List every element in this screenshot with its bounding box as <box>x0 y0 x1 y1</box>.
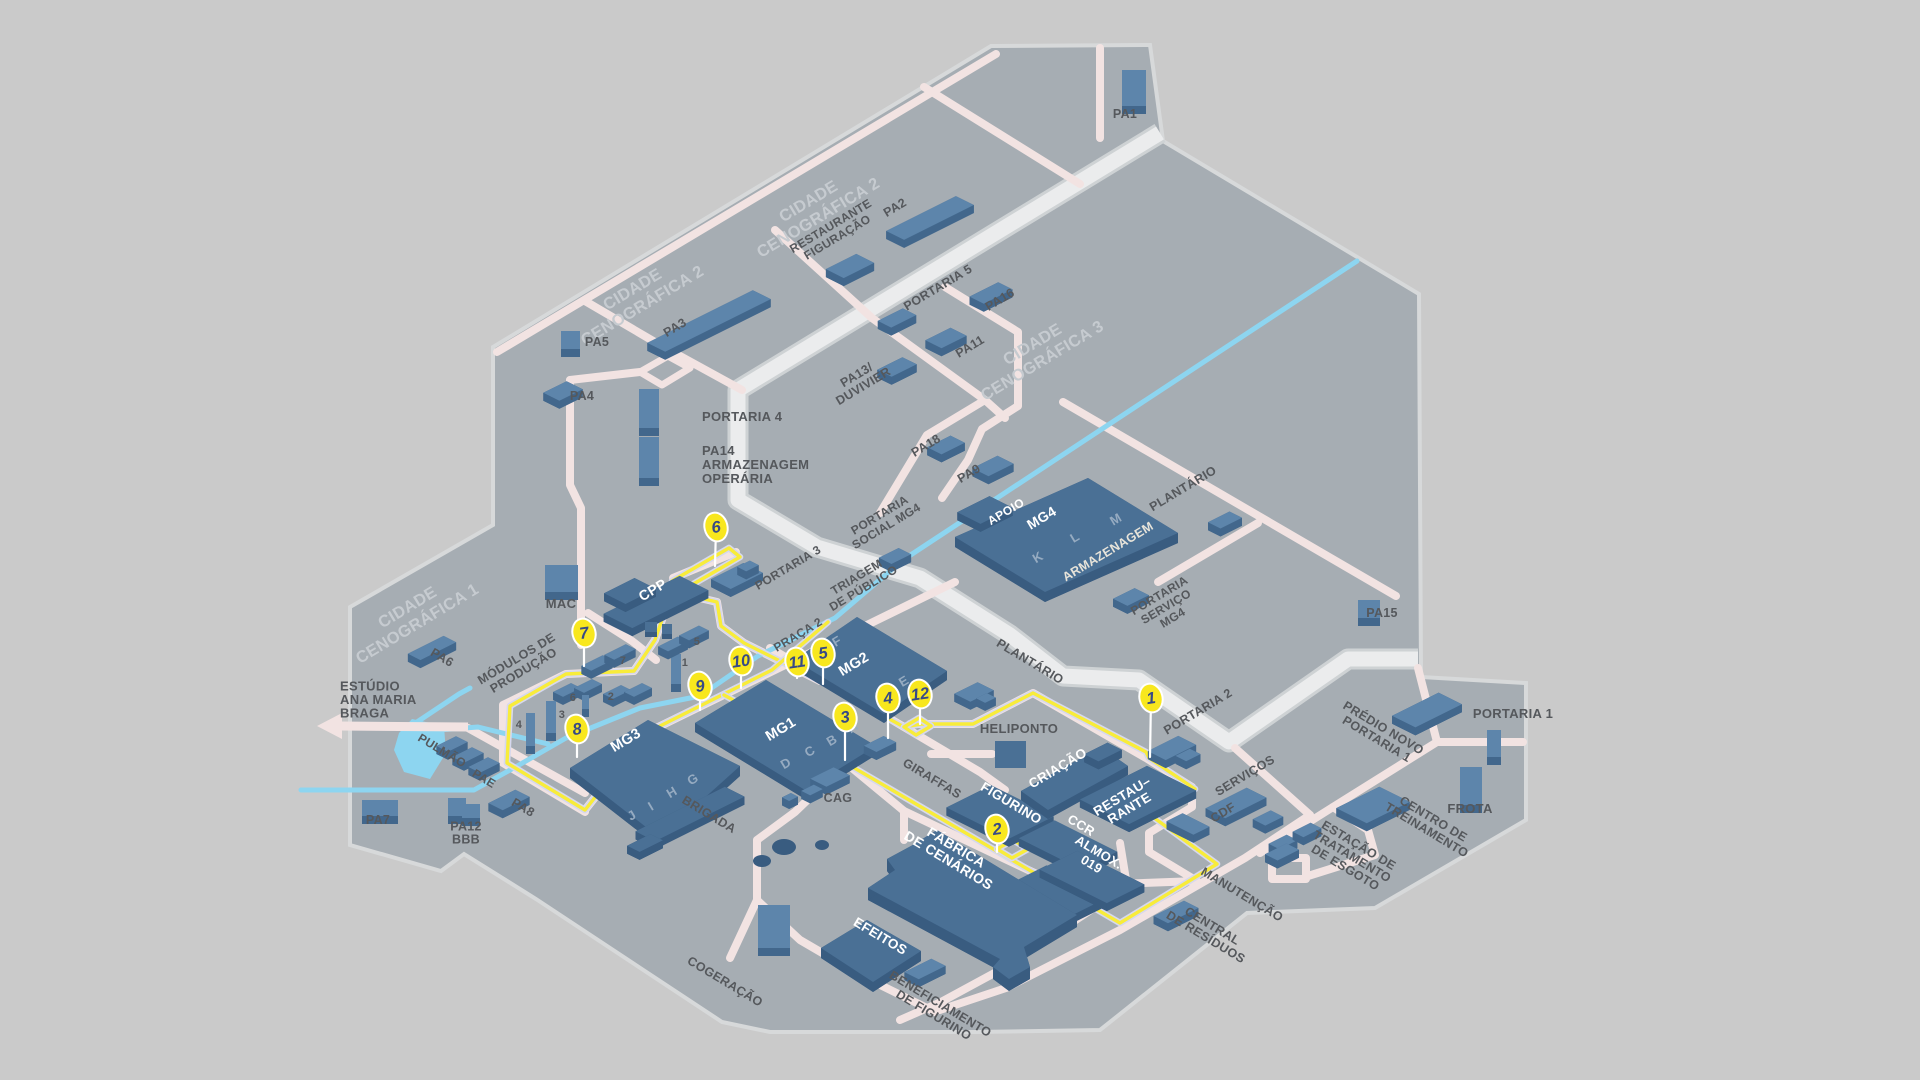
svg-text:FROTA: FROTA <box>1447 801 1493 816</box>
svg-text:ARMAZENAGEM: ARMAZENAGEM <box>702 457 809 472</box>
svg-text:PA1: PA1 <box>1113 107 1137 121</box>
svg-text:3: 3 <box>559 709 565 721</box>
svg-text:PA4: PA4 <box>570 389 594 403</box>
svg-text:MAC: MAC <box>546 596 577 611</box>
svg-text:6: 6 <box>570 692 576 704</box>
svg-text:10: 10 <box>731 651 752 671</box>
svg-text:OPERÁRIA: OPERÁRIA <box>702 471 773 486</box>
svg-text:HELIPONTO: HELIPONTO <box>980 721 1058 736</box>
svg-text:PA12: PA12 <box>450 820 482 834</box>
svg-text:BRAGA: BRAGA <box>340 706 389 721</box>
svg-text:CAG: CAG <box>824 791 853 805</box>
svg-text:BBB: BBB <box>452 833 480 847</box>
svg-text:4: 4 <box>516 719 523 731</box>
svg-text:PORTARIA 1: PORTARIA 1 <box>1473 706 1553 721</box>
svg-text:1: 1 <box>682 657 688 669</box>
svg-text:PA14: PA14 <box>702 443 735 458</box>
svg-text:5: 5 <box>694 636 700 648</box>
svg-text:11: 11 <box>787 652 806 672</box>
svg-text:PA7: PA7 <box>366 813 390 827</box>
svg-text:PORTARIA 4: PORTARIA 4 <box>702 409 783 424</box>
svg-text:12: 12 <box>910 684 931 704</box>
svg-text:PA15: PA15 <box>1366 606 1398 620</box>
svg-text:7: 7 <box>620 655 626 667</box>
svg-text:2: 2 <box>608 691 614 703</box>
svg-text:PA5: PA5 <box>585 335 609 349</box>
